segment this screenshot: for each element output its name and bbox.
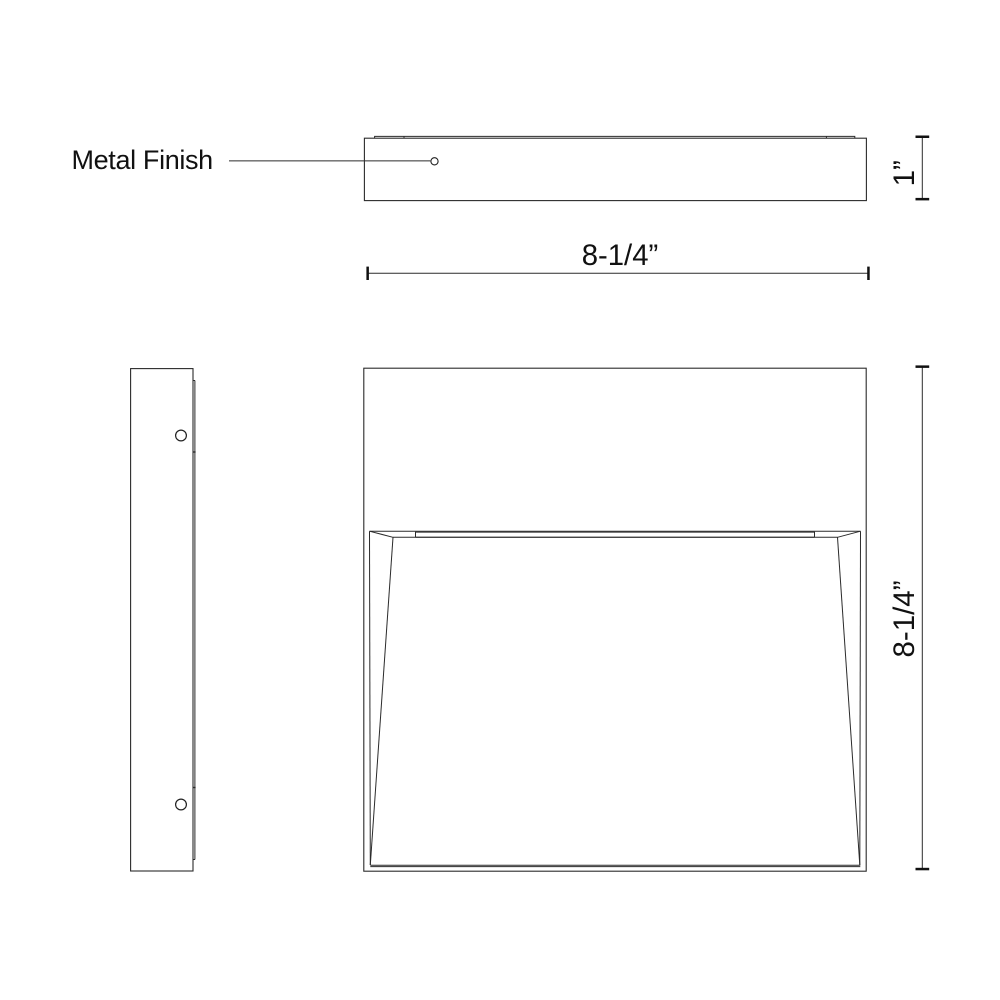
svg-text:Metal Finish: Metal Finish (72, 145, 213, 175)
svg-text:1”: 1” (888, 160, 921, 186)
svg-text:8-1/4”: 8-1/4” (888, 580, 921, 657)
svg-text:8-1/4”: 8-1/4” (582, 239, 659, 272)
